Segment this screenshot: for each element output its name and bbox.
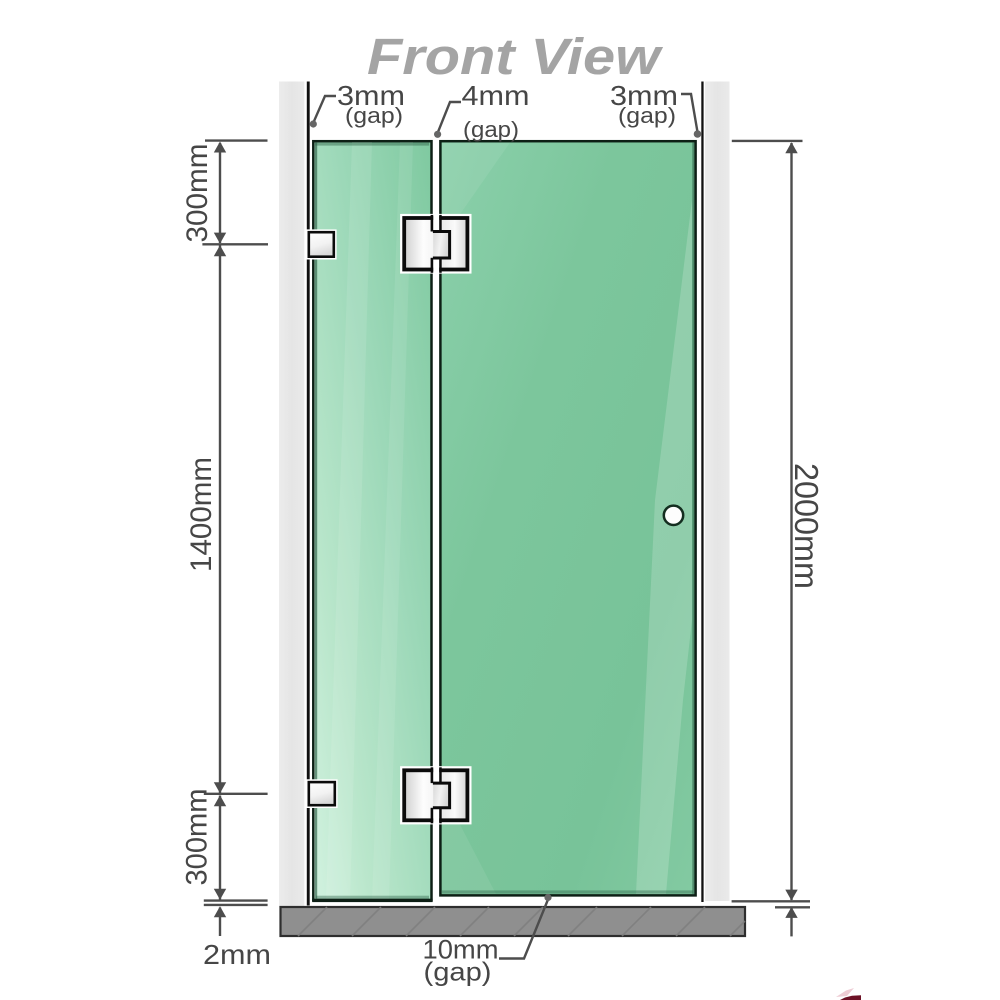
- svg-text:(gap): (gap): [463, 117, 519, 142]
- svg-text:4mm: 4mm: [462, 80, 530, 111]
- svg-text:300mm: 300mm: [181, 144, 214, 243]
- svg-text:2000mm: 2000mm: [788, 463, 825, 589]
- svg-text:1400mm: 1400mm: [185, 457, 218, 572]
- svg-text:2mm: 2mm: [203, 939, 271, 970]
- svg-text:(gap): (gap): [424, 957, 492, 987]
- svg-text:Front View: Front View: [367, 28, 664, 85]
- svg-text:(gap): (gap): [618, 103, 676, 128]
- svg-text:300mm: 300mm: [181, 789, 214, 886]
- svg-text:(gap): (gap): [345, 103, 403, 128]
